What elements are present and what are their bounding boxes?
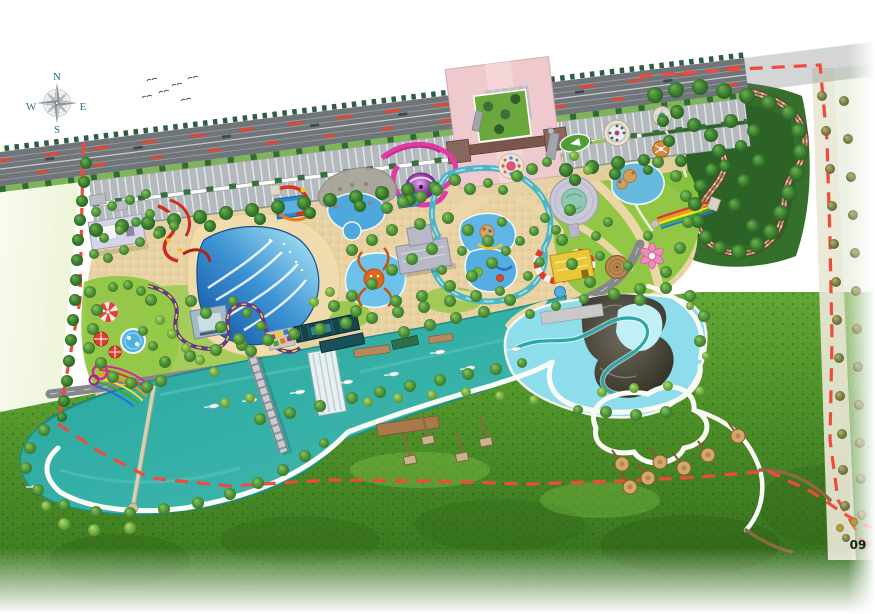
tree-icon [692, 79, 708, 95]
tree-icon [495, 391, 505, 401]
small-pool [555, 287, 566, 298]
tree-icon [495, 286, 505, 296]
tree-icon [643, 231, 653, 241]
tree-icon [735, 140, 747, 152]
tree-icon [829, 239, 839, 249]
tree-icon [58, 395, 70, 407]
tree-icon [704, 128, 718, 142]
tree-icon [242, 308, 252, 318]
tree-icon [630, 409, 642, 421]
tree-icon [233, 333, 245, 345]
tree-icon [634, 283, 646, 295]
tree-icon [747, 124, 761, 138]
tree-icon [529, 226, 539, 236]
tree-icon [346, 392, 358, 404]
tree-icon [517, 358, 527, 368]
tree-icon [103, 253, 113, 263]
tree-icon [728, 198, 742, 212]
tree-icon [444, 280, 456, 292]
tree-icon [80, 157, 92, 169]
tree-icon [107, 371, 119, 383]
tree-icon [752, 154, 766, 168]
tree-icon [591, 231, 601, 241]
compass-letter-s: S [54, 124, 60, 136]
tree-icon [415, 191, 427, 203]
tree-icon [611, 156, 625, 170]
tree-icon [600, 406, 612, 418]
tree-icon [195, 355, 205, 365]
tree-icon [416, 290, 428, 302]
tree-icon [155, 375, 167, 387]
tree-icon [200, 307, 212, 319]
tree-icon [657, 115, 669, 127]
tree-icon [69, 294, 81, 306]
tree-icon [138, 326, 148, 336]
tree-icon [224, 488, 236, 500]
tree-icon [838, 465, 848, 475]
tree-icon [61, 375, 73, 387]
tree-icon [386, 224, 398, 236]
tree-icon [457, 246, 467, 256]
tree-icon [719, 160, 731, 172]
tree-icon [579, 294, 589, 304]
tree-icon [340, 317, 352, 329]
tree-icon [540, 213, 550, 223]
tree-icon [638, 154, 650, 166]
tree-icon [501, 246, 511, 256]
tree-icon [835, 391, 845, 401]
tree-icon [694, 335, 706, 347]
tree-icon [698, 310, 710, 322]
tree-icon [684, 290, 696, 302]
compass-letter-w: W [26, 101, 37, 113]
tree-icon [393, 393, 403, 403]
tree-icon [125, 377, 137, 389]
tree-icon [323, 193, 337, 207]
tree-icon [647, 87, 663, 103]
tree-icon [763, 224, 779, 240]
tree-icon [442, 212, 454, 224]
tree-icon [209, 367, 219, 377]
tree-icon [89, 249, 99, 259]
tree-icon [699, 230, 713, 244]
tree-icon [375, 186, 389, 200]
tree-icon [346, 290, 358, 302]
tree-icon [325, 287, 335, 297]
tree-icon [831, 277, 841, 287]
tree-icon [450, 312, 462, 324]
tree-icon [686, 302, 694, 310]
tree-icon [219, 206, 233, 220]
tree-icon [169, 221, 179, 231]
tree-icon [535, 257, 545, 267]
tree-icon [65, 334, 77, 346]
tree-icon [366, 278, 378, 290]
tree-icon [737, 174, 751, 188]
tree-icon [131, 217, 141, 227]
tree-icon [584, 276, 596, 288]
tree-icon [515, 236, 525, 246]
tree-icon [462, 224, 474, 236]
tree-icon [67, 314, 79, 326]
tree-icon [145, 294, 157, 306]
tree-icon [434, 374, 446, 386]
tree-icon [63, 355, 75, 367]
tree-icon [470, 290, 482, 302]
tree-icon [660, 406, 672, 418]
tree-icon [57, 412, 67, 422]
tree-icon [466, 270, 478, 282]
tree-icon [90, 506, 102, 518]
tree-icon [397, 196, 409, 208]
tree-icon [670, 170, 682, 182]
tree-icon [87, 323, 99, 335]
tree-icon [192, 497, 204, 509]
tree-icon [827, 201, 837, 211]
tree-icon [595, 251, 605, 261]
tree-icon [609, 168, 621, 180]
tree-icon [72, 234, 84, 246]
tree-icon [245, 393, 255, 403]
tree-icon [461, 387, 471, 397]
tree-icon [141, 381, 153, 393]
tree-icon [124, 507, 136, 519]
tree-icon [556, 234, 568, 246]
tree-icon [153, 229, 163, 239]
tree-icon [346, 244, 358, 256]
tree-icon [817, 91, 827, 101]
tree-icon [497, 217, 507, 227]
tree-icon [746, 219, 760, 233]
tree-icon [108, 282, 118, 292]
tree-icon [88, 524, 100, 536]
tree-icon [160, 356, 170, 366]
tree-icon [674, 242, 686, 254]
tree-icon [482, 235, 494, 247]
tree-icon [277, 464, 289, 476]
tree-icon [427, 390, 437, 400]
tree-icon [304, 207, 316, 219]
tree-icon [119, 245, 129, 255]
tree-icon [663, 135, 675, 147]
tree-icon [566, 258, 578, 270]
compass-letter-e: E [80, 101, 87, 113]
tree-icon [254, 213, 266, 225]
tree-icon [634, 294, 646, 306]
tree-icon [424, 319, 436, 331]
tree-icon [319, 438, 329, 448]
tree-icon [354, 200, 366, 212]
tree-icon [789, 165, 805, 181]
tree-icon [328, 300, 340, 312]
tree-icon [832, 315, 842, 325]
tree-icon [781, 185, 797, 201]
tree-icon [431, 184, 443, 196]
tree-icon [773, 205, 789, 221]
water-park-master-plan: N E S W 09 [0, 0, 875, 614]
flower-icon [837, 525, 844, 532]
tree-icon [652, 156, 664, 168]
tree-icon [418, 301, 430, 313]
tree-icon [821, 126, 831, 136]
tree-icon [366, 234, 378, 246]
tree-icon [687, 118, 701, 132]
tree-icon [95, 357, 107, 369]
tree-icon [262, 334, 274, 346]
tree-icon [107, 201, 117, 211]
tree-icon [839, 96, 849, 106]
tree-icon [252, 477, 264, 489]
tree-icon [551, 301, 561, 311]
tree-icon [91, 207, 101, 217]
tree-icon [20, 462, 32, 474]
tree-icon [486, 257, 498, 269]
tree-icon [660, 282, 672, 294]
tree-icon [716, 83, 732, 99]
tree-icon [426, 243, 438, 255]
tree-icon [680, 190, 692, 202]
tree-icon [793, 144, 809, 160]
tree-icon [643, 165, 653, 175]
tree-icon [141, 189, 151, 199]
tree-icon [608, 288, 620, 300]
tree-icon [210, 344, 222, 356]
tree-icon [124, 522, 136, 534]
tree-icon [603, 217, 613, 227]
tree-icon [374, 386, 386, 398]
tree-icon [363, 397, 373, 407]
tree-icon [155, 315, 165, 325]
tree-icon [148, 341, 158, 351]
tree-icon [392, 306, 404, 318]
tree-icon [569, 174, 581, 186]
tree-icon [670, 105, 684, 119]
tree-icon [58, 499, 70, 511]
tree-icon [24, 442, 36, 454]
tree-icon [713, 241, 727, 255]
tree-icon [695, 386, 705, 396]
tree-icon [449, 174, 461, 186]
tree-icon [350, 305, 362, 317]
tree-icon [483, 178, 493, 188]
tree-icon [38, 424, 50, 436]
tree-icon [724, 114, 738, 128]
tree-icon [781, 105, 797, 121]
tree-icon [444, 295, 456, 307]
tree-icon [76, 195, 88, 207]
tree-icon [386, 264, 398, 276]
tree-icon [629, 383, 639, 393]
tree-icon [185, 295, 197, 307]
tree-icon [705, 163, 719, 177]
tree-icon [256, 321, 266, 331]
tree-icon [437, 265, 447, 275]
tree-icon [511, 170, 523, 182]
tree-icon [83, 342, 95, 354]
tree-icon [271, 200, 285, 214]
tree-icon [490, 363, 502, 375]
tree-icon [682, 216, 694, 228]
tree-icon [564, 204, 576, 216]
tree-icon [91, 304, 103, 316]
tree-icon [739, 88, 755, 104]
tree-icon [158, 503, 170, 515]
tree-icon [731, 244, 747, 260]
tree-icon [254, 413, 266, 425]
tree-icon [299, 450, 311, 462]
site-plan-canvas: N E S W 09 [0, 0, 875, 614]
tree-icon [712, 144, 726, 158]
tree-icon [366, 312, 378, 324]
tree-icon [660, 266, 672, 278]
tree-icon [71, 254, 83, 266]
tree-icon [551, 225, 561, 235]
tree-icon [663, 381, 673, 391]
tree-icon [167, 329, 177, 339]
flower-icon [851, 519, 858, 526]
tree-icon [32, 484, 44, 496]
tree-icon [414, 218, 426, 230]
tree-icon [220, 398, 230, 408]
tree-icon [834, 353, 844, 363]
tree-icon [569, 151, 579, 161]
tree-icon [404, 380, 416, 392]
tree-icon [84, 286, 96, 298]
tree-icon [573, 405, 583, 415]
tree-icon [390, 295, 402, 307]
tree-icon [749, 237, 765, 253]
tree-icon [529, 395, 539, 405]
tree-icon [288, 328, 300, 340]
tree-icon [559, 163, 573, 177]
tree-icon [462, 368, 474, 380]
tree-icon [597, 387, 607, 397]
tree-icon [228, 296, 238, 306]
tree-icon [504, 294, 516, 306]
tree-icon [145, 209, 155, 219]
tree-icon [668, 82, 684, 98]
tree-icon [542, 157, 552, 167]
tree-icon [314, 323, 326, 335]
tree-icon [825, 164, 835, 174]
tree-icon [583, 165, 593, 175]
tree-icon [245, 345, 257, 357]
tree-icon [761, 95, 777, 111]
tree-icon [526, 163, 538, 175]
tree-icon [204, 220, 216, 232]
tree-icon [314, 400, 326, 412]
tree-icon [623, 261, 633, 271]
tree-icon [136, 286, 146, 296]
tree-icon [99, 233, 109, 243]
tree-icon [309, 297, 319, 307]
compass-letter-n: N [53, 71, 61, 83]
tree-icon [702, 352, 710, 360]
tree-icon [74, 214, 86, 226]
tree-icon [525, 309, 535, 319]
tree-icon [70, 274, 82, 286]
tree-icon [498, 185, 508, 195]
tree-icon [381, 202, 393, 214]
tree-icon [837, 429, 847, 439]
tree-icon [78, 176, 90, 188]
tree-icon [406, 253, 418, 265]
tree-icon [398, 326, 410, 338]
tree-icon [41, 501, 51, 511]
page-number: 09 [850, 538, 867, 552]
tree-icon [464, 183, 476, 195]
round-ride-a [604, 120, 630, 146]
tree-icon [215, 321, 227, 333]
tree-icon [675, 155, 687, 167]
tree-icon [791, 123, 807, 139]
tree-icon [694, 179, 708, 193]
tree-icon [135, 237, 145, 247]
tree-icon [523, 271, 533, 281]
tree-icon [115, 225, 125, 235]
bottom-fade [0, 548, 875, 614]
tree-icon [193, 210, 207, 224]
tree-icon [58, 518, 70, 530]
tree-icon [123, 280, 133, 290]
tree-icon [478, 306, 490, 318]
tree-icon [125, 195, 135, 205]
tree-icon [284, 407, 296, 419]
tree-icon [181, 343, 191, 353]
